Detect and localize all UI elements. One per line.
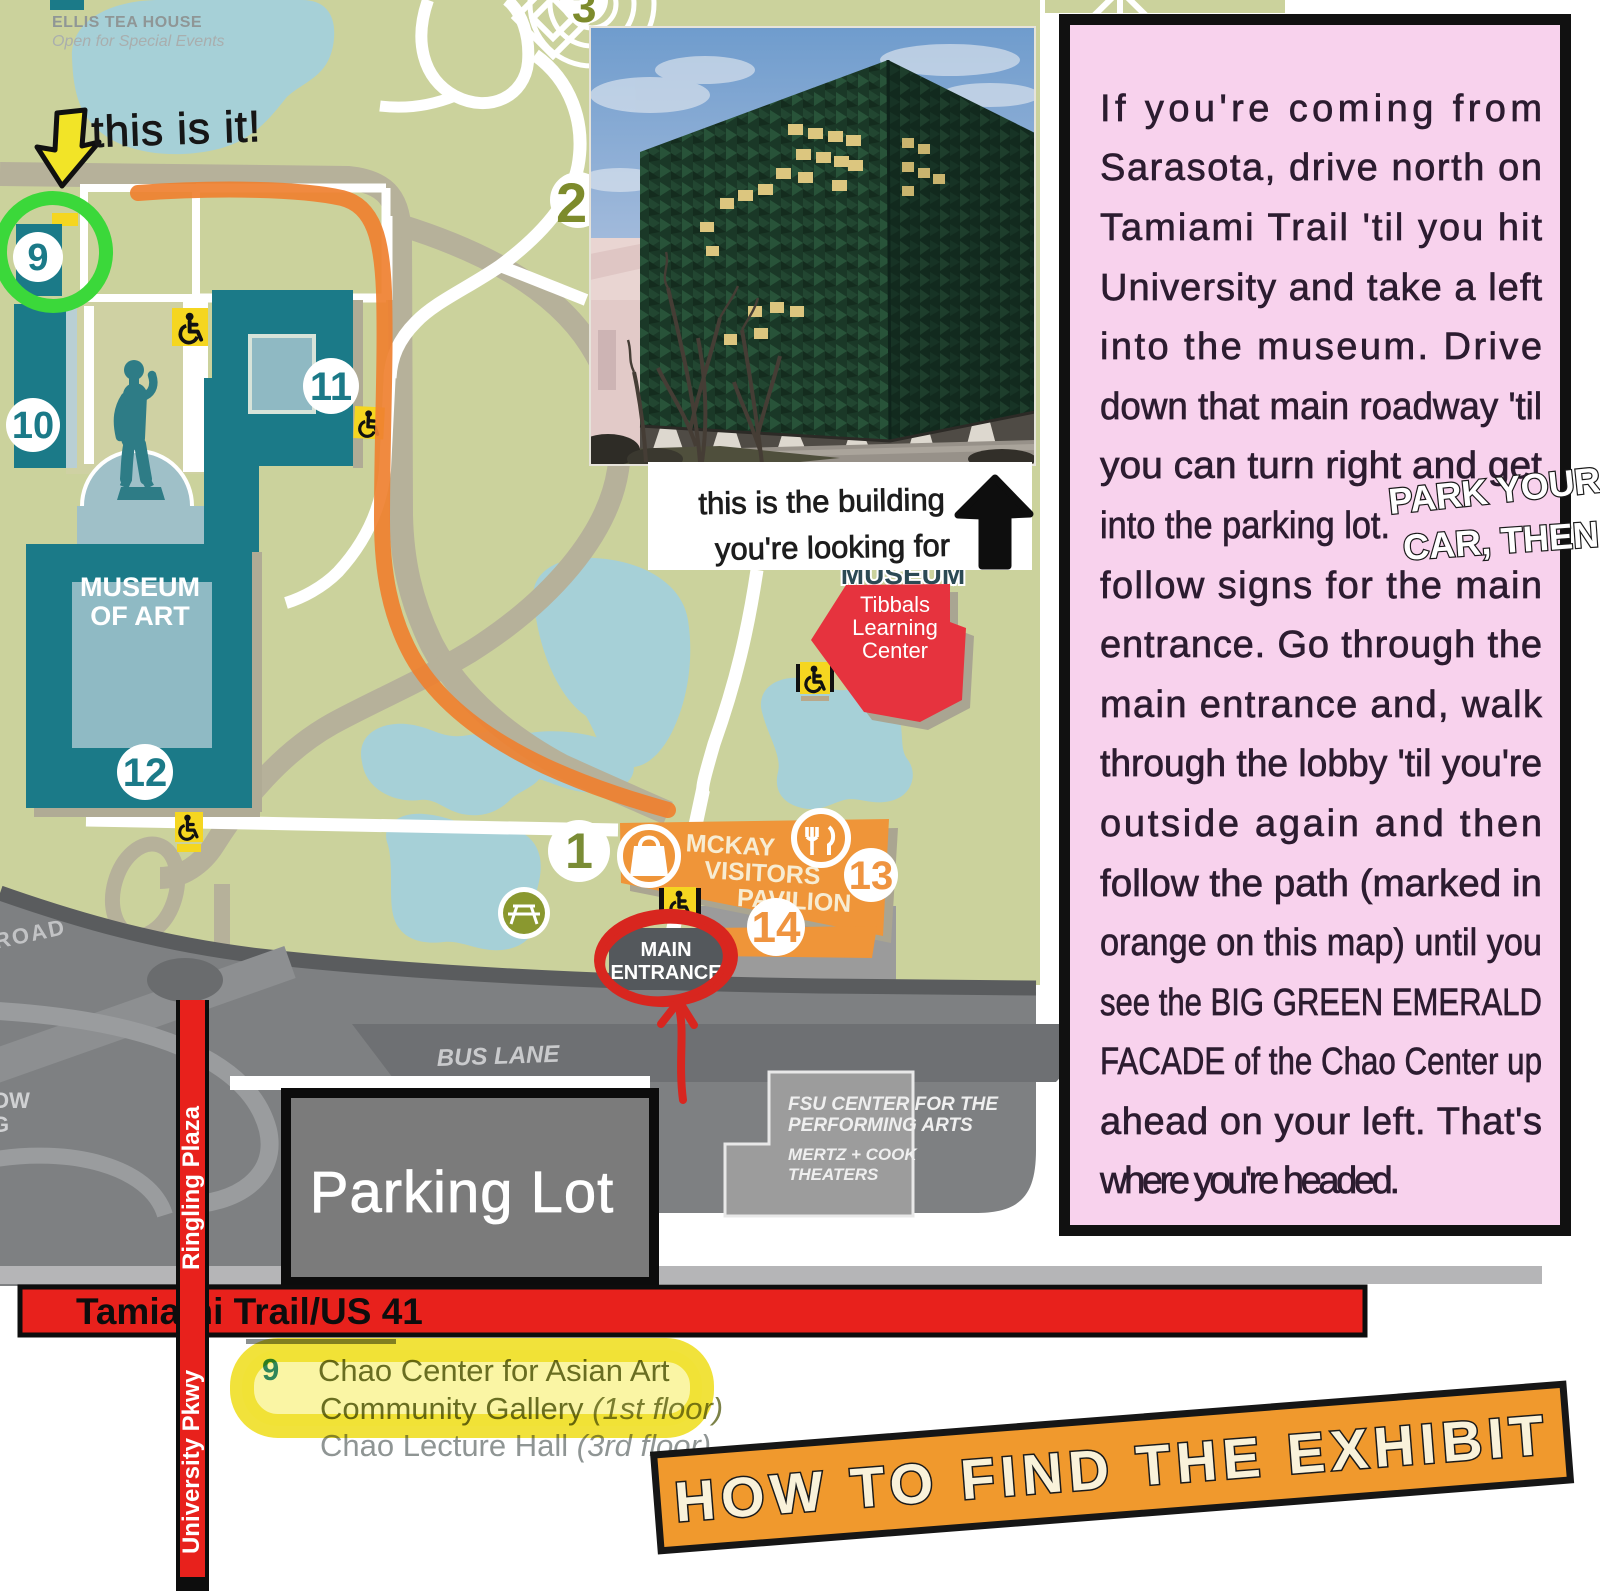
svg-text:Tamiami Trail/US 41: Tamiami Trail/US 41 xyxy=(76,1291,423,1332)
svg-text:1: 1 xyxy=(565,823,593,879)
svg-text:into the parking lot.: into the parking lot. xyxy=(1100,505,1390,547)
svg-text:2: 2 xyxy=(556,171,587,234)
svg-text:Ringling Plaza: Ringling Plaza xyxy=(178,1105,205,1270)
svg-text:14: 14 xyxy=(752,903,801,952)
svg-text:Tibbals: Tibbals xyxy=(860,592,930,617)
svg-text:9: 9 xyxy=(27,237,48,279)
svg-text:12: 12 xyxy=(123,751,168,795)
svg-text:10: 10 xyxy=(12,405,54,447)
svg-text:Center: Center xyxy=(862,638,928,663)
svg-text:see the BIG GREEN EMERALD: see the BIG GREEN EMERALD xyxy=(1100,982,1542,1024)
svg-text:FACADE of the Chao Center up: FACADE of the Chao Center up xyxy=(1100,1041,1542,1083)
svg-text:this is it!: this is it! xyxy=(91,102,263,157)
svg-text:13: 13 xyxy=(849,854,894,898)
svg-text:Tamiami Trail 'til you hit: Tamiami Trail 'til you hit xyxy=(1100,207,1542,249)
svg-text:OF ART: OF ART xyxy=(90,601,190,631)
svg-text:Learning: Learning xyxy=(852,615,938,640)
svg-text:you're looking for: you're looking for xyxy=(715,528,951,567)
svg-text:Open for Special Events: Open for Special Events xyxy=(52,33,225,50)
svg-text:orange on this map) until you: orange on this map) until you xyxy=(1100,922,1542,964)
svg-text:G: G xyxy=(0,1112,9,1137)
svg-text:MUSEUM: MUSEUM xyxy=(80,572,200,602)
svg-text:BUS LANE: BUS LANE xyxy=(436,1041,561,1072)
svg-text:ELLIS TEA HOUSE: ELLIS TEA HOUSE xyxy=(52,14,202,31)
svg-text:outside again and then: outside again and then xyxy=(1100,803,1542,845)
svg-text:University Pkwy: University Pkwy xyxy=(178,1369,205,1554)
svg-text:entrance. Go through the: entrance. Go through the xyxy=(1100,624,1542,666)
svg-text:University and take a left: University and take a left xyxy=(1100,267,1542,309)
svg-text:ENTRANCE: ENTRANCE xyxy=(610,962,721,984)
svg-text:this is the building: this is the building xyxy=(698,482,945,521)
svg-text:follow signs for the main: follow signs for the main xyxy=(1100,565,1542,607)
svg-text:MERTZ + COOK: MERTZ + COOK xyxy=(788,1145,918,1164)
svg-text:ahead on your left. That's: ahead on your left. That's xyxy=(1100,1101,1542,1143)
svg-text:11: 11 xyxy=(310,365,352,409)
svg-text:THEATERS: THEATERS xyxy=(788,1165,879,1184)
svg-text:Sarasota, drive north on: Sarasota, drive north on xyxy=(1100,147,1542,189)
svg-text:main entrance and, walk: main entrance and, walk xyxy=(1100,684,1543,726)
svg-text:through the lobby 'til you're: through the lobby 'til you're xyxy=(1100,743,1542,785)
svg-text:PERFORMING ARTS: PERFORMING ARTS xyxy=(788,1115,973,1136)
svg-text:Parking Lot: Parking Lot xyxy=(310,1160,614,1225)
svg-text:FSU CENTER FOR THE: FSU CENTER FOR THE xyxy=(788,1094,999,1115)
svg-text:where you're headed.: where you're headed. xyxy=(1099,1160,1400,1202)
svg-text:down that main roadway 'til: down that main roadway 'til xyxy=(1100,386,1542,428)
svg-text:MAIN: MAIN xyxy=(640,939,691,961)
svg-text:OW: OW xyxy=(0,1088,30,1113)
svg-text:follow the path (marked in: follow the path (marked in xyxy=(1100,863,1542,905)
svg-text:into the museum. Drive: into the museum. Drive xyxy=(1100,326,1542,368)
